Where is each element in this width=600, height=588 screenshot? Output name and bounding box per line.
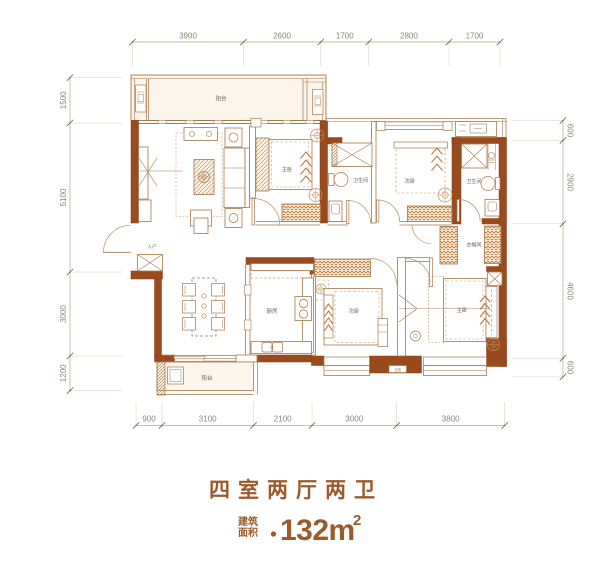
svg-text:3000: 3000 <box>59 305 68 323</box>
svg-text:建筑: 建筑 <box>237 515 258 528</box>
svg-text:5100: 5100 <box>59 188 68 206</box>
svg-text:900: 900 <box>142 415 156 424</box>
svg-text:1700: 1700 <box>336 32 354 41</box>
svg-text:2: 2 <box>353 512 361 529</box>
svg-text:1200: 1200 <box>59 364 68 382</box>
svg-text:面积: 面积 <box>238 526 258 539</box>
svg-text:空调: 空调 <box>395 367 401 372</box>
svg-text:600: 600 <box>566 124 575 138</box>
svg-text:次卧: 次卧 <box>348 307 360 315</box>
svg-text:卫生间: 卫生间 <box>466 178 481 185</box>
svg-text:卫生间: 卫生间 <box>353 177 368 184</box>
svg-text:厨房: 厨房 <box>266 307 278 315</box>
svg-text:主卧: 主卧 <box>281 166 293 174</box>
svg-text:主卧: 主卧 <box>456 306 468 314</box>
svg-text:3800: 3800 <box>442 415 460 424</box>
svg-text:次卧: 次卧 <box>404 177 416 185</box>
svg-text:1500: 1500 <box>59 91 68 109</box>
svg-text:2600: 2600 <box>273 32 291 41</box>
svg-text:1700: 1700 <box>466 32 484 41</box>
svg-text:4600: 4600 <box>566 282 575 300</box>
svg-text:2800: 2800 <box>400 32 418 41</box>
svg-text:3900: 3900 <box>179 32 197 41</box>
svg-text:阳台: 阳台 <box>201 374 213 382</box>
svg-text:入户: 入户 <box>148 243 157 250</box>
svg-text:衣帽间: 衣帽间 <box>466 242 481 249</box>
svg-text:132m: 132m <box>280 514 355 547</box>
svg-text:2900: 2900 <box>566 173 575 191</box>
svg-text:600: 600 <box>566 361 575 375</box>
svg-text:阳台: 阳台 <box>215 95 227 103</box>
svg-text:2100: 2100 <box>274 415 292 424</box>
svg-text:3100: 3100 <box>199 415 217 424</box>
svg-text:3000: 3000 <box>345 415 363 424</box>
svg-text:四室两厅两卫: 四室两厅两卫 <box>209 478 383 502</box>
